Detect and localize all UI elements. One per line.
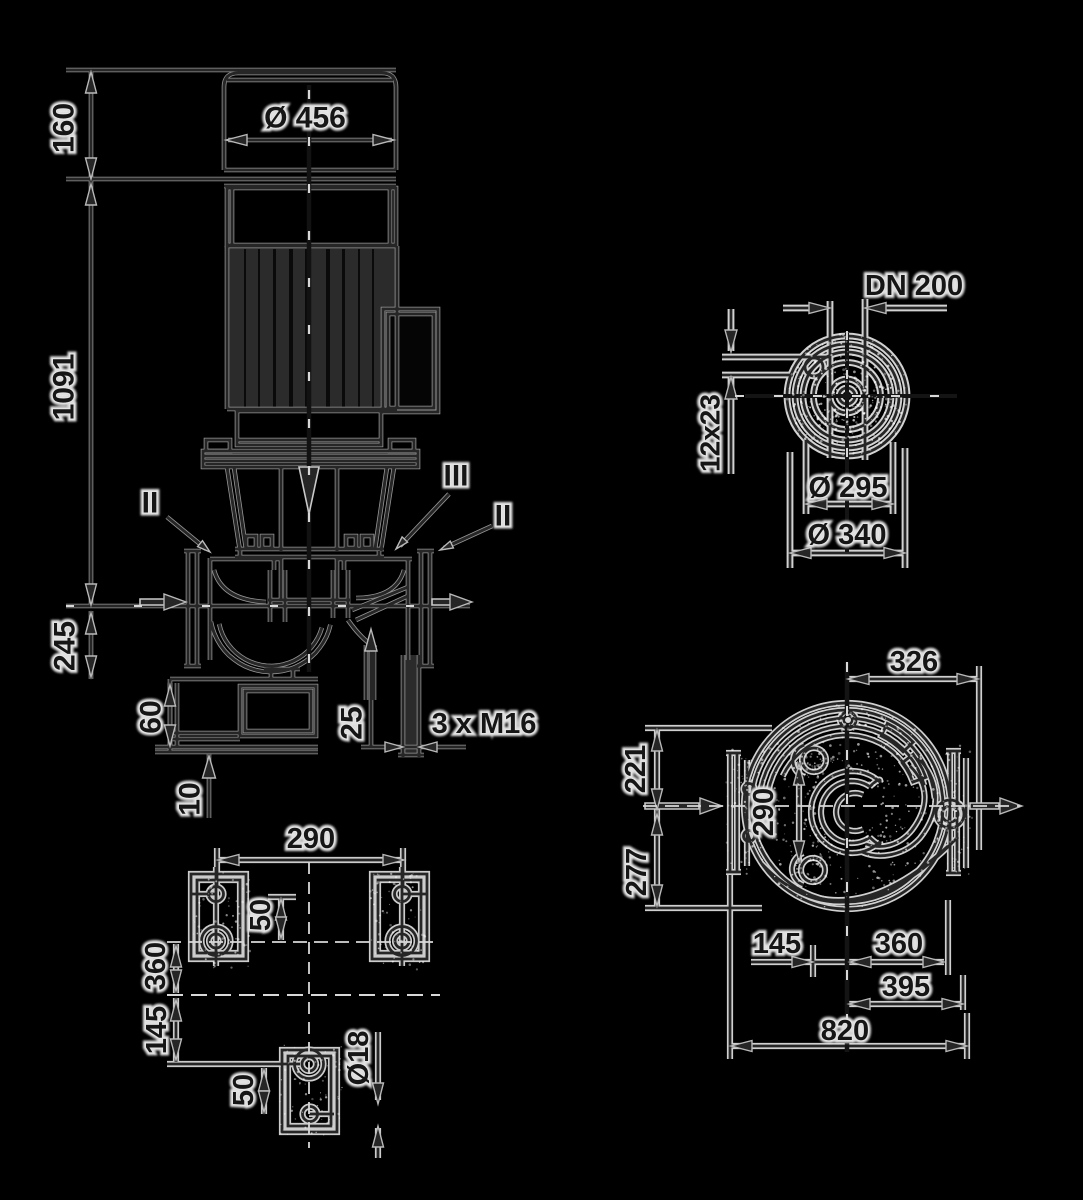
- svg-text:145: 145: [753, 928, 801, 960]
- svg-text:395: 395: [882, 971, 930, 1003]
- svg-text:3 x M16: 3 x M16: [432, 708, 537, 740]
- svg-text:Ø 456: Ø 456: [264, 102, 346, 135]
- svg-text:III: III: [443, 460, 468, 493]
- svg-text:360: 360: [875, 928, 923, 960]
- svg-text:II: II: [142, 487, 159, 520]
- svg-text:277: 277: [621, 848, 653, 896]
- svg-text:1091: 1091: [48, 354, 81, 421]
- svg-text:221: 221: [620, 745, 652, 793]
- svg-text:326: 326: [890, 646, 938, 678]
- svg-text:Ø 340: Ø 340: [808, 519, 887, 551]
- svg-text:Ø18: Ø18: [343, 1031, 375, 1086]
- svg-text:245: 245: [49, 621, 82, 671]
- svg-text:820: 820: [821, 1015, 869, 1047]
- svg-text:50: 50: [245, 899, 277, 931]
- svg-text:II: II: [495, 500, 512, 533]
- svg-text:12x23: 12x23: [695, 394, 726, 472]
- svg-text:360: 360: [140, 942, 172, 990]
- svg-text:Ø 295: Ø 295: [809, 472, 888, 504]
- svg-text:60: 60: [135, 700, 168, 733]
- svg-text:290: 290: [287, 823, 335, 855]
- svg-text:160: 160: [48, 103, 81, 153]
- svg-text:290: 290: [748, 788, 780, 836]
- svg-text:25: 25: [336, 706, 369, 739]
- svg-text:50: 50: [228, 1074, 260, 1106]
- svg-text:145: 145: [141, 1006, 173, 1054]
- svg-text:DN 200: DN 200: [865, 270, 963, 302]
- svg-text:10: 10: [174, 782, 207, 815]
